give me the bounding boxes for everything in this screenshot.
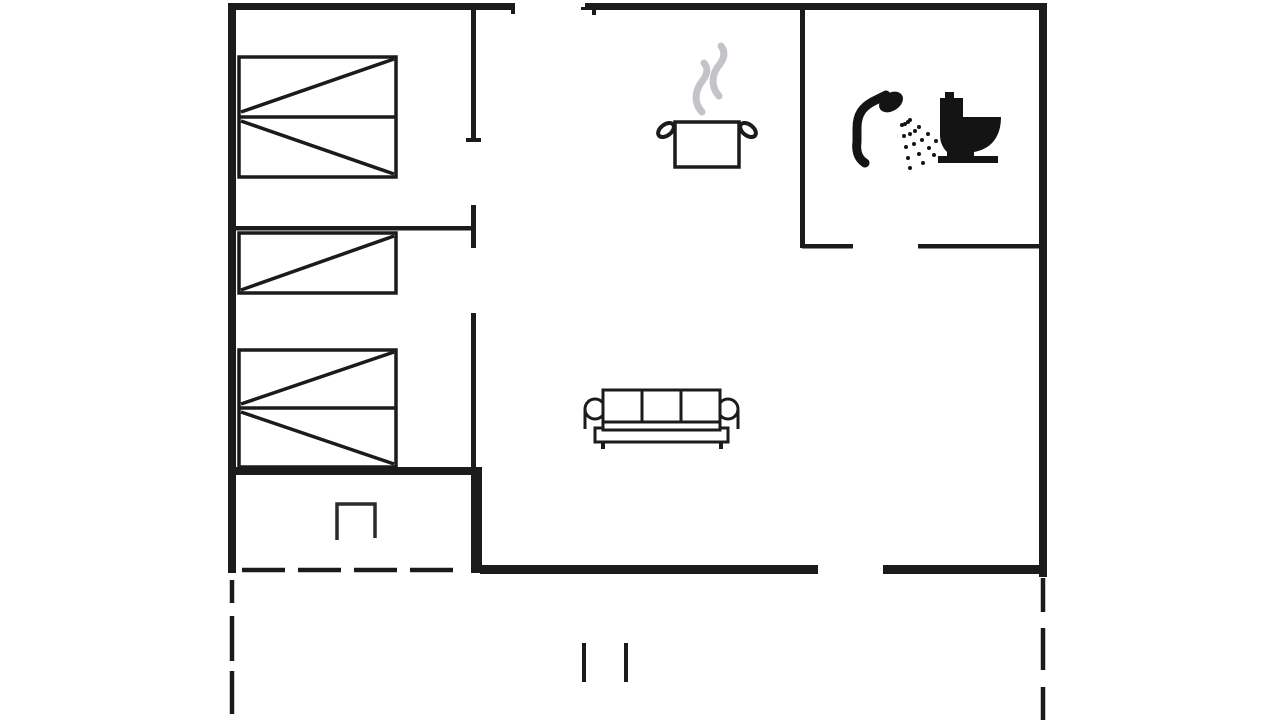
spray-dot [927, 146, 931, 150]
porch-east-wall [471, 467, 482, 573]
hall-wall-lower-segment [471, 313, 476, 469]
spray-dot [908, 166, 912, 170]
bathroom-west-wall [800, 8, 805, 248]
terrace-outline [232, 570, 1043, 720]
left-exterior-wall [228, 3, 236, 573]
sofa-seat [603, 422, 720, 430]
spray-dot [921, 161, 925, 165]
shower-head [875, 87, 907, 116]
porch-symbol [337, 504, 375, 540]
hall-wall-upper-segment [471, 3, 476, 142]
window-lead-line [581, 7, 593, 10]
window-end-tick [511, 3, 515, 14]
floor-plan-page [0, 0, 1280, 720]
floor-plan [0, 0, 1280, 720]
spray-dot [913, 129, 917, 133]
spray-dot [917, 152, 921, 156]
sofa-back [603, 390, 720, 422]
toilet-icon [938, 92, 1001, 163]
south-wall-right-segment [883, 565, 1047, 574]
porch-niche [337, 504, 375, 540]
spray-dot [908, 118, 912, 122]
bathroom-south-wall-left [802, 244, 853, 249]
right-exterior-wall [1039, 3, 1047, 577]
spray-dot [912, 142, 916, 146]
bedroom-divider-wall [236, 226, 473, 231]
spray-dot [932, 153, 936, 157]
spray-dot [908, 132, 912, 136]
south-wall-left-segment [480, 565, 818, 574]
toilet-silhouette [938, 92, 1001, 163]
spray-dot [926, 132, 930, 136]
sofa [585, 390, 738, 449]
spray-dot [902, 134, 906, 138]
steam-wisp [696, 63, 707, 112]
pot-body [675, 122, 739, 167]
door-end-tick [466, 138, 481, 142]
sofa-leg [601, 442, 605, 449]
beds [239, 57, 396, 467]
spray-dot [917, 125, 921, 129]
cooking-pot-icon [656, 46, 759, 167]
bathroom-south-wall-right [918, 244, 1041, 249]
shower-icon [857, 87, 938, 170]
spray-dot [906, 156, 910, 160]
steam-wisp [713, 46, 724, 96]
spray-dot [920, 138, 924, 142]
spray-dot [904, 145, 908, 149]
spray-dot [934, 139, 938, 143]
top-wall-right-segment [585, 3, 1047, 10]
sofa-leg [719, 442, 723, 449]
